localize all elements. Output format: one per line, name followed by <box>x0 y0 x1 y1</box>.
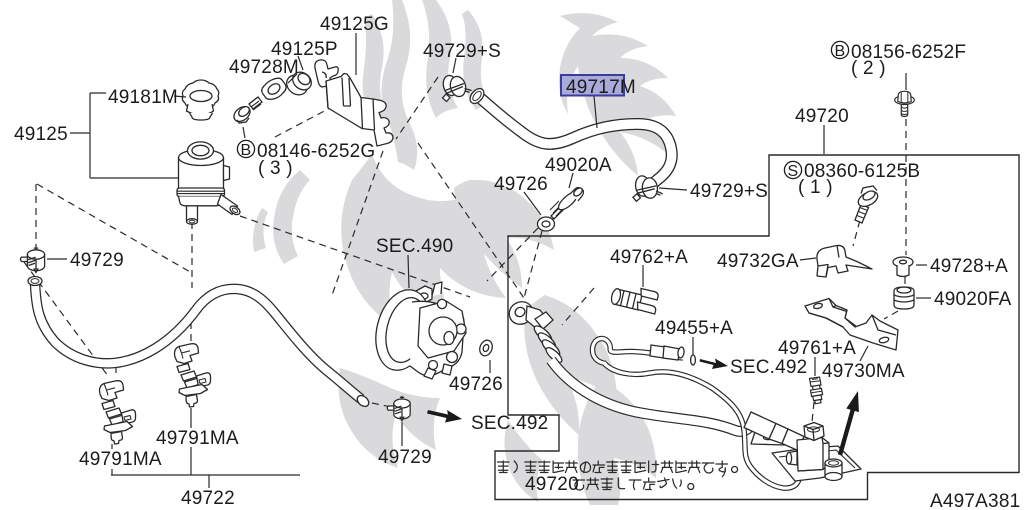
svg-text:49730MA: 49730MA <box>822 361 905 382</box>
svg-text:49717M: 49717M <box>566 77 636 98</box>
svg-text:49722: 49722 <box>181 488 235 509</box>
svg-text:49728M: 49728M <box>229 57 299 78</box>
svg-text:( 2 ): ( 2 ) <box>851 58 886 79</box>
svg-text:49729: 49729 <box>70 250 124 271</box>
svg-text:49726: 49726 <box>494 174 548 195</box>
svg-text:A497A381: A497A381 <box>930 491 1020 510</box>
svg-text:49762+A: 49762+A <box>610 247 688 268</box>
svg-text:( 3 ): ( 3 ) <box>258 158 293 179</box>
svg-text:B: B <box>835 43 846 60</box>
svg-text:49761+A: 49761+A <box>778 338 856 359</box>
svg-text:49720: 49720 <box>525 474 579 495</box>
svg-text:49732GA: 49732GA <box>717 251 799 272</box>
svg-text:49125G: 49125G <box>320 14 389 35</box>
svg-text:49729+S: 49729+S <box>690 181 768 202</box>
svg-text:49728+A: 49728+A <box>930 256 1008 277</box>
svg-text:49020FA: 49020FA <box>934 289 1012 310</box>
svg-text:49125: 49125 <box>14 124 68 145</box>
svg-text:49720: 49720 <box>795 106 849 127</box>
svg-text:49020A: 49020A <box>545 155 612 176</box>
svg-text:SEC.492: SEC.492 <box>730 357 807 378</box>
svg-text:49181M: 49181M <box>108 87 178 108</box>
svg-text:B: B <box>241 142 252 159</box>
svg-text:49791MA: 49791MA <box>79 449 162 470</box>
svg-text:49726: 49726 <box>449 374 503 395</box>
svg-text:SEC.490: SEC.490 <box>376 236 453 257</box>
svg-text:S: S <box>788 163 799 180</box>
svg-text:49729+S: 49729+S <box>423 41 501 62</box>
svg-text:( 1 ): ( 1 ) <box>798 177 833 198</box>
svg-text:49729: 49729 <box>378 447 432 468</box>
svg-text:49791MA: 49791MA <box>156 428 239 449</box>
svg-text:49455+A: 49455+A <box>655 318 733 339</box>
svg-text:SEC.492: SEC.492 <box>471 413 548 434</box>
